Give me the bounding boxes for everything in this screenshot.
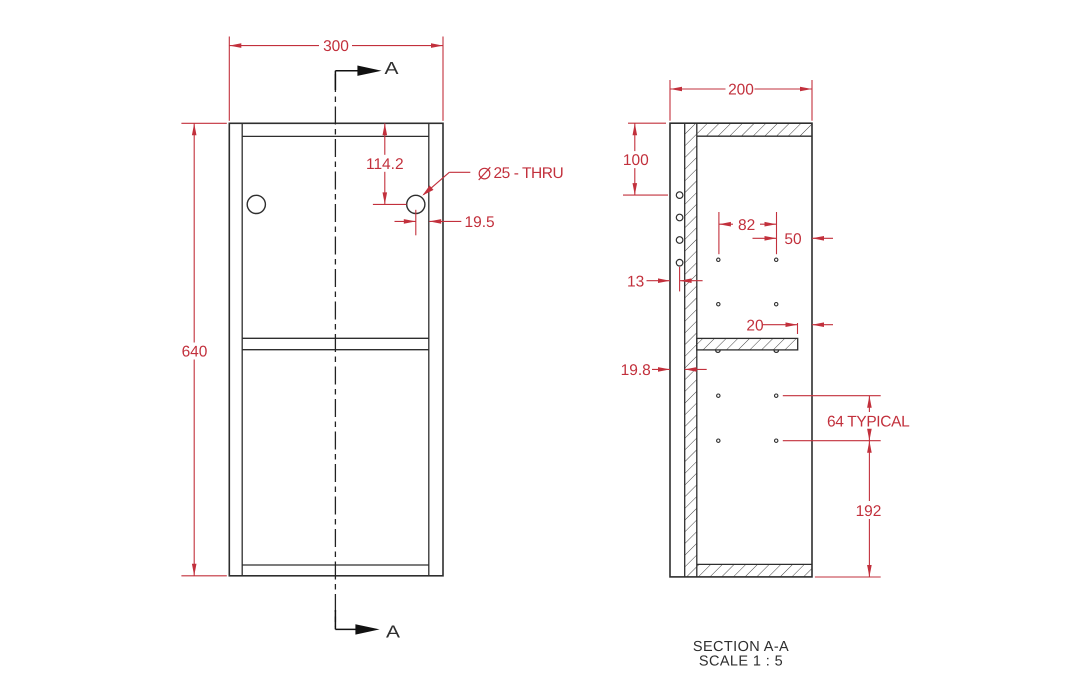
svg-text:19.5: 19.5 — [465, 214, 495, 231]
svg-text:300: 300 — [323, 38, 349, 55]
svg-text:25 - THRU: 25 - THRU — [494, 165, 564, 182]
svg-text:A: A — [386, 621, 400, 641]
svg-text:50: 50 — [784, 231, 802, 248]
svg-text:19.8: 19.8 — [621, 362, 651, 379]
svg-text:A: A — [385, 58, 399, 78]
svg-text:100: 100 — [623, 152, 649, 169]
svg-text:114.2: 114.2 — [366, 156, 404, 173]
svg-text:SCALE 1 : 5: SCALE 1 : 5 — [699, 654, 783, 670]
svg-text:20: 20 — [746, 317, 764, 334]
svg-text:64 TYPICAL: 64 TYPICAL — [827, 414, 910, 431]
svg-text:82: 82 — [738, 217, 755, 234]
svg-text:192: 192 — [856, 503, 882, 520]
svg-text:640: 640 — [182, 344, 208, 361]
svg-text:200: 200 — [728, 82, 754, 99]
svg-text:13: 13 — [627, 273, 644, 290]
